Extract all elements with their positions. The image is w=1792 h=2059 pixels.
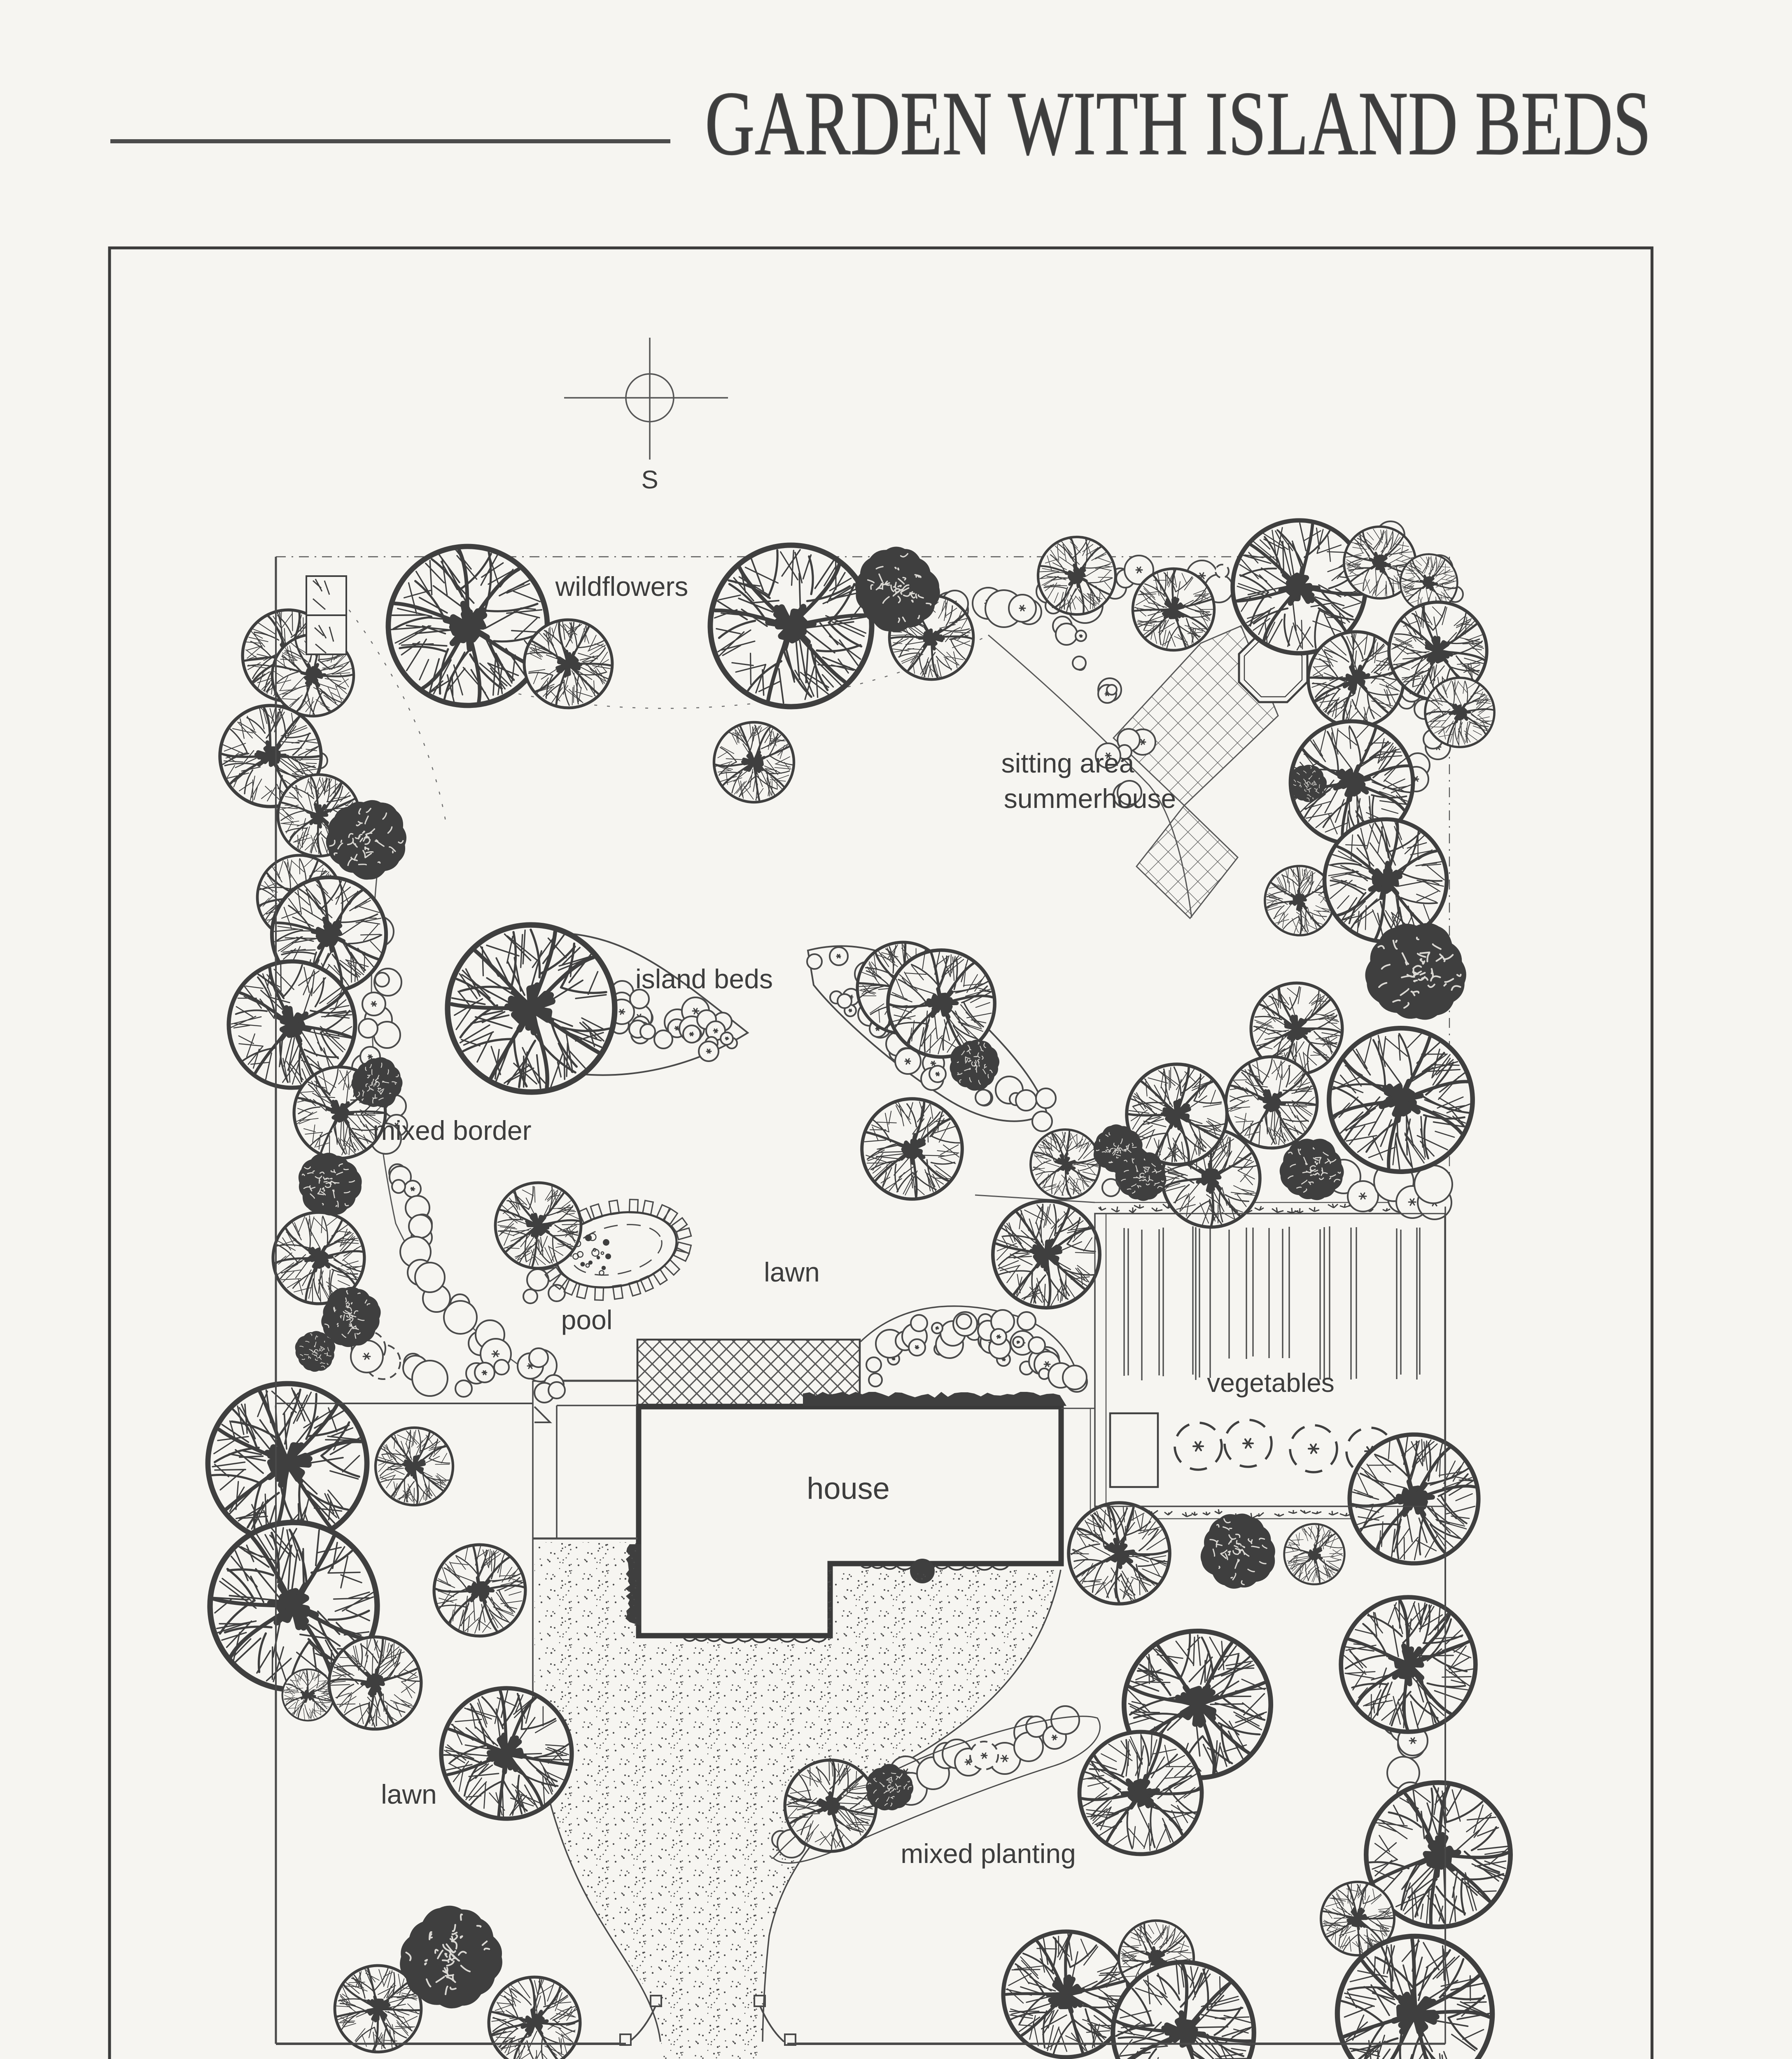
svg-text:mixed border: mixed border <box>373 1115 531 1146</box>
svg-text:vegetables: vegetables <box>1207 1368 1335 1398</box>
svg-text:summerhouse: summerhouse <box>1004 783 1176 814</box>
svg-text:mixed planting: mixed planting <box>901 1838 1076 1869</box>
svg-text:lawn: lawn <box>764 1257 820 1287</box>
svg-text:S: S <box>641 466 658 494</box>
svg-text:pool: pool <box>561 1305 613 1335</box>
svg-text:lawn: lawn <box>381 1779 437 1809</box>
svg-text:sitting area: sitting area <box>1001 748 1134 778</box>
svg-text:GARDEN WITH ISLAND BEDS: GARDEN WITH ISLAND BEDS <box>705 73 1651 174</box>
svg-text:wildflowers: wildflowers <box>555 571 688 602</box>
svg-text:house: house <box>807 1471 890 1506</box>
svg-text:island beds: island beds <box>635 964 773 994</box>
